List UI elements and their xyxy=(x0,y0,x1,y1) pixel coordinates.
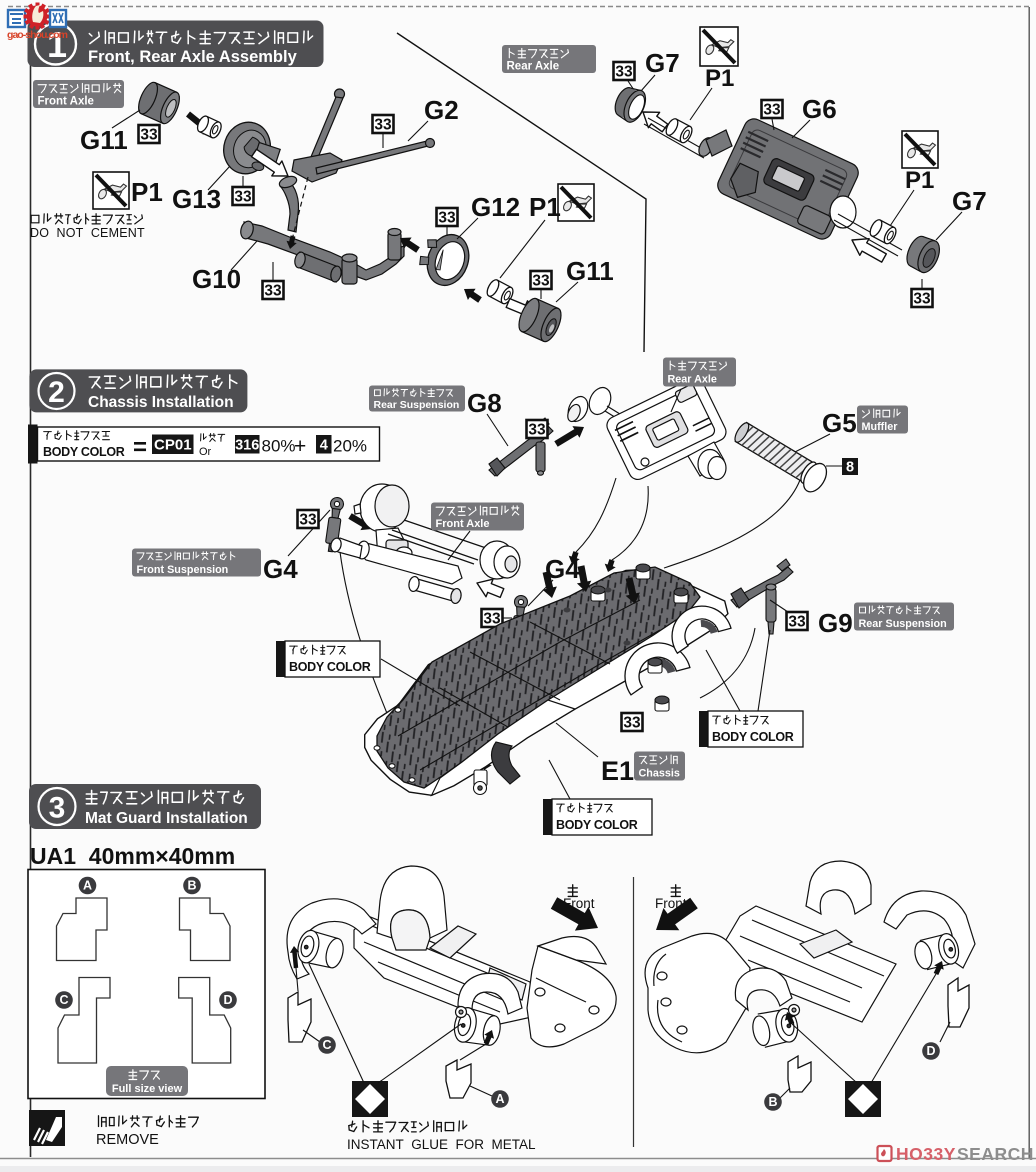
svg-text:P1: P1 xyxy=(905,167,934,194)
svg-text:P1: P1 xyxy=(705,65,734,92)
svg-text:SEARCH: SEARCH xyxy=(957,1144,1034,1164)
svg-text:C: C xyxy=(322,1038,331,1052)
svg-text:33: 33 xyxy=(140,127,158,144)
svg-text:P1: P1 xyxy=(131,177,163,207)
svg-text:G2: G2 xyxy=(424,95,459,125)
svg-text:316: 316 xyxy=(235,438,259,454)
svg-text:33: 33 xyxy=(913,291,931,308)
svg-text:33: 33 xyxy=(623,715,641,732)
svg-text:Rear Suspension: Rear Suspension xyxy=(374,399,460,411)
svg-text:3: 3 xyxy=(49,792,66,825)
svg-text:BODY COLOR: BODY COLOR xyxy=(43,445,125,459)
svg-text:G9: G9 xyxy=(818,608,853,638)
svg-text:Rear Axle: Rear Axle xyxy=(507,60,560,72)
svg-text:=: = xyxy=(133,434,147,461)
svg-text:HO33Y: HO33Y xyxy=(896,1144,956,1164)
svg-text:G4: G4 xyxy=(263,554,298,584)
svg-text:2: 2 xyxy=(48,376,65,409)
svg-text:33: 33 xyxy=(532,273,550,290)
svg-text:D: D xyxy=(926,1044,935,1058)
svg-text:G7: G7 xyxy=(952,186,987,216)
svg-text:33: 33 xyxy=(763,102,781,119)
svg-text:BODY COLOR: BODY COLOR xyxy=(556,818,638,832)
svg-text:80%: 80% xyxy=(262,437,296,456)
svg-text:G10: G10 xyxy=(192,264,241,294)
svg-text:A: A xyxy=(83,879,92,893)
svg-text:33: 33 xyxy=(788,614,806,631)
svg-text:Mat Guard Installation: Mat Guard Installation xyxy=(85,810,248,827)
svg-text:Rear Axle: Rear Axle xyxy=(668,374,717,386)
svg-text:33: 33 xyxy=(615,64,633,81)
svg-text:33: 33 xyxy=(234,189,252,206)
svg-text:G11: G11 xyxy=(80,125,128,155)
svg-text:BODY COLOR: BODY COLOR xyxy=(712,730,794,744)
svg-text:33: 33 xyxy=(528,422,546,439)
svg-text:UA1 40mm×40mm: UA1 40mm×40mm xyxy=(30,843,235,869)
svg-text:P1: P1 xyxy=(529,192,561,222)
svg-text:Front Axle: Front Axle xyxy=(436,518,490,530)
svg-text:G6: G6 xyxy=(802,94,837,124)
svg-text:B: B xyxy=(768,1095,777,1109)
svg-text:20%: 20% xyxy=(333,437,367,456)
svg-text:Rear Suspension: Rear Suspension xyxy=(859,618,947,630)
svg-text:33: 33 xyxy=(374,117,392,134)
svg-text:G12: G12 xyxy=(471,192,520,222)
svg-text:INSTANT GLUE FOR METAL: INSTANT GLUE FOR METAL xyxy=(347,1137,536,1152)
svg-text:D: D xyxy=(223,993,232,1007)
svg-text:C: C xyxy=(59,993,68,1007)
svg-text:CP01: CP01 xyxy=(154,437,192,454)
svg-text:Front Axle: Front Axle xyxy=(38,95,94,107)
svg-text:Front, Rear Axle Assembly: Front, Rear Axle Assembly xyxy=(88,48,298,66)
svg-text:Or: Or xyxy=(199,446,212,458)
svg-text:A: A xyxy=(495,1092,504,1106)
svg-text:Front Suspension: Front Suspension xyxy=(137,564,229,576)
svg-text:B: B xyxy=(187,879,196,893)
svg-text:Chassis Installation: Chassis Installation xyxy=(88,394,234,411)
svg-text:DO NOT CEMENT: DO NOT CEMENT xyxy=(30,226,145,240)
svg-text:G5: G5 xyxy=(822,408,857,438)
svg-text:Muffler: Muffler xyxy=(862,421,899,433)
svg-text:Chassis: Chassis xyxy=(639,768,680,780)
svg-text:8: 8 xyxy=(846,460,854,476)
svg-text:4: 4 xyxy=(320,438,328,454)
svg-text:33: 33 xyxy=(299,512,317,529)
svg-text:Full size view: Full size view xyxy=(112,1083,183,1095)
svg-text:33: 33 xyxy=(264,283,282,300)
svg-text:BODY COLOR: BODY COLOR xyxy=(289,660,371,674)
svg-text:G8: G8 xyxy=(467,388,502,418)
svg-text:E1: E1 xyxy=(601,756,634,786)
svg-text:G13: G13 xyxy=(172,184,221,214)
svg-text:REMOVE: REMOVE xyxy=(96,1132,159,1148)
svg-text:gao-shou.com: gao-shou.com xyxy=(7,29,68,41)
svg-text:33: 33 xyxy=(438,210,456,227)
svg-text:+: + xyxy=(294,435,306,458)
svg-text:G7: G7 xyxy=(645,48,680,78)
svg-text:G11: G11 xyxy=(566,256,614,286)
